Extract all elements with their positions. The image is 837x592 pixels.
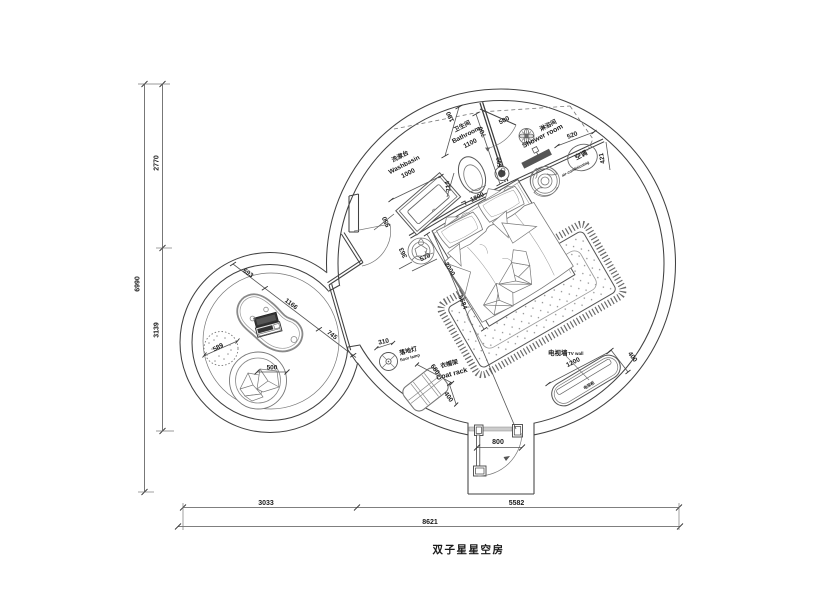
svg-text:500: 500	[267, 365, 278, 372]
svg-text:800: 800	[492, 439, 504, 446]
svg-text:双子星星空房: 双子星星空房	[432, 543, 505, 556]
svg-text:3139: 3139	[154, 322, 161, 338]
svg-text:6990: 6990	[135, 276, 142, 292]
svg-text:8621: 8621	[422, 519, 438, 526]
svg-text:3033: 3033	[258, 500, 274, 507]
svg-text:电视墙: 电视墙	[548, 348, 568, 357]
svg-text:TV wall: TV wall	[568, 351, 584, 356]
svg-text:2770: 2770	[154, 155, 161, 171]
svg-text:5582: 5582	[509, 500, 525, 507]
